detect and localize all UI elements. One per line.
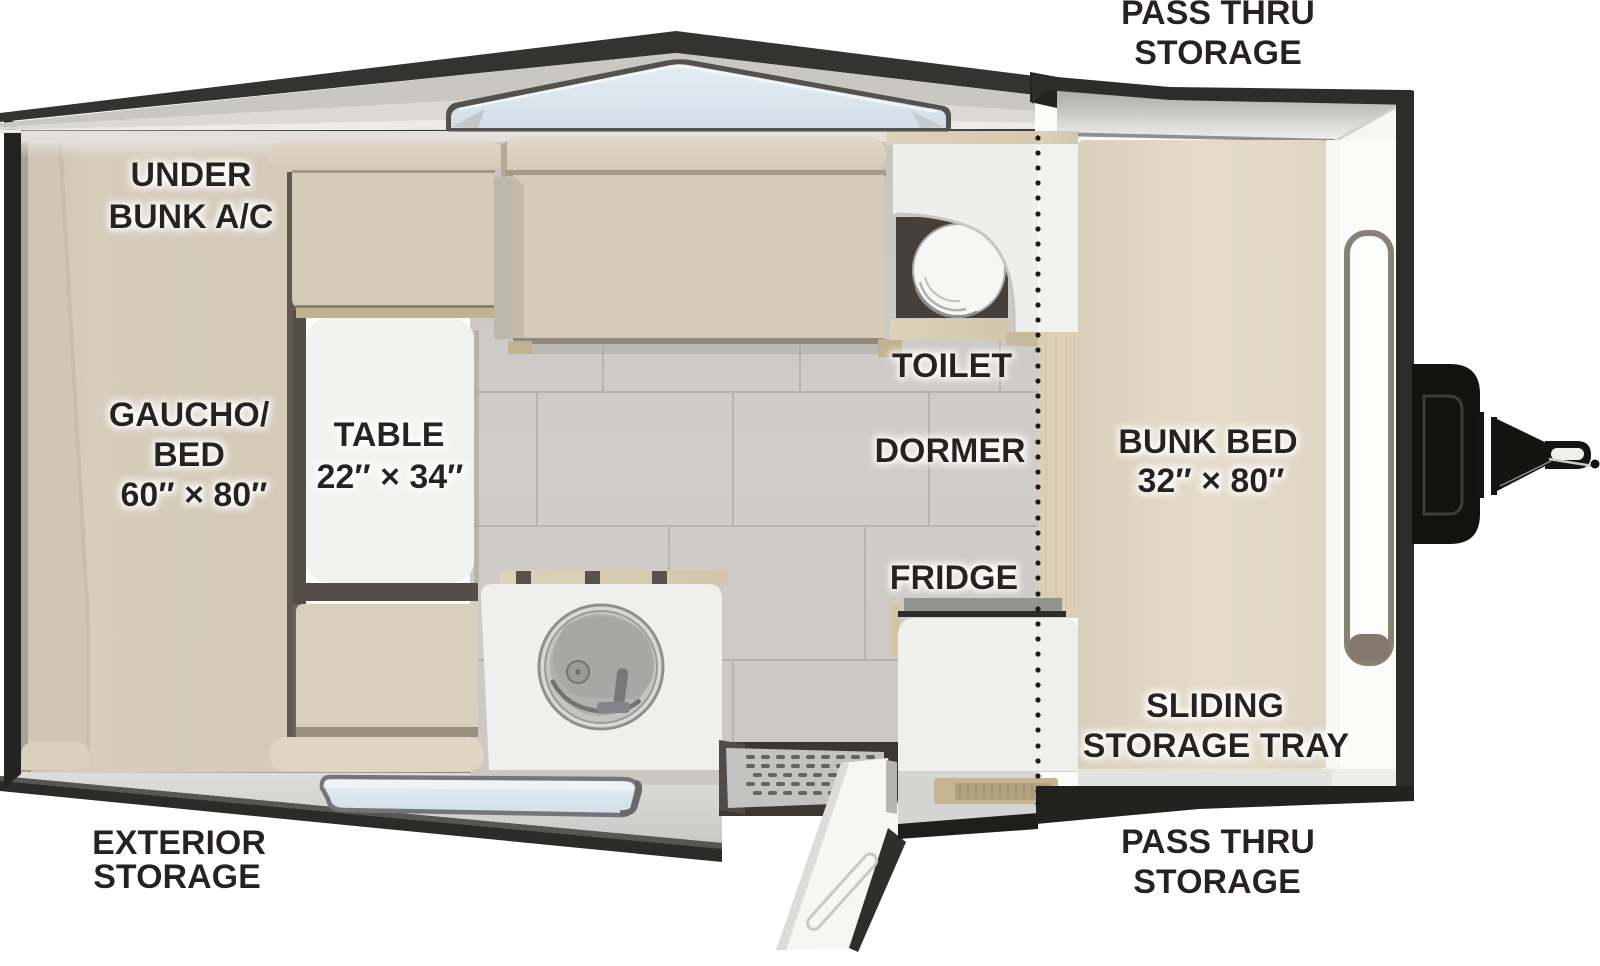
svg-text:GAUCHO/: GAUCHO/ bbox=[109, 396, 270, 434]
svg-text:STORAGE: STORAGE bbox=[1134, 34, 1302, 72]
svg-text:STORAGE TRAY: STORAGE TRAY bbox=[1083, 727, 1350, 765]
svg-text:EXTERIOR: EXTERIOR bbox=[92, 824, 266, 862]
svg-text:PASS THRU: PASS THRU bbox=[1121, 823, 1315, 861]
svg-text:SLIDING: SLIDING bbox=[1146, 687, 1284, 725]
svg-text:32″ × 80″: 32″ × 80″ bbox=[1138, 462, 1285, 500]
svg-text:BUNK A/C: BUNK A/C bbox=[109, 198, 274, 236]
svg-text:DORMER: DORMER bbox=[874, 432, 1025, 470]
svg-text:FRIDGE: FRIDGE bbox=[890, 559, 1018, 597]
svg-text:STORAGE: STORAGE bbox=[93, 858, 261, 896]
svg-text:BUNK BED: BUNK BED bbox=[1118, 423, 1297, 461]
svg-text:TOILET: TOILET bbox=[892, 347, 1012, 385]
svg-text:PASS THRU: PASS THRU bbox=[1121, 0, 1315, 32]
svg-text:UNDER: UNDER bbox=[131, 156, 252, 194]
svg-text:60″ × 80″: 60″ × 80″ bbox=[121, 476, 268, 514]
svg-text:STORAGE: STORAGE bbox=[1133, 863, 1301, 901]
svg-text:TABLE: TABLE bbox=[334, 416, 445, 454]
svg-text:BED: BED bbox=[153, 436, 225, 474]
svg-text:22″ × 34″: 22″ × 34″ bbox=[317, 458, 464, 496]
